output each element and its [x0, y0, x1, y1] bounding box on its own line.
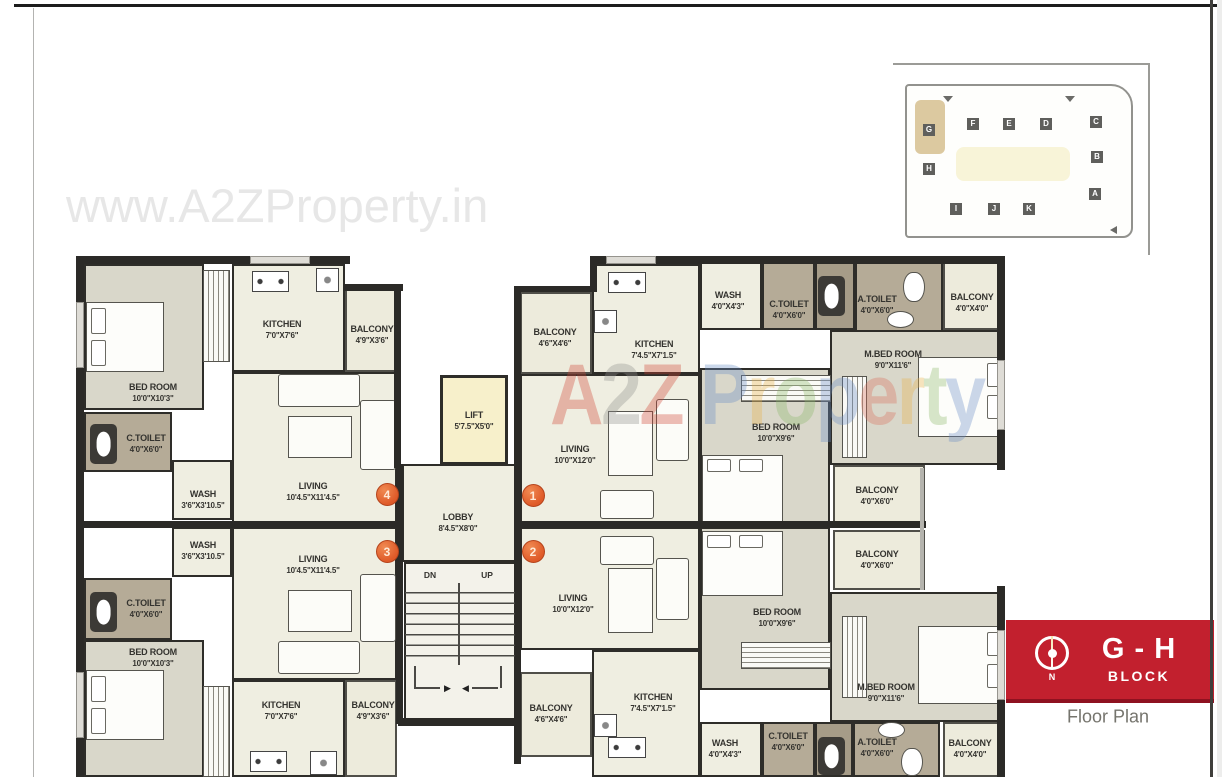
room-label-balcony-1: BALCONY4'6"X4'6"	[533, 327, 576, 349]
pillow-icon	[91, 308, 106, 334]
room-label-wash-3: WASH3'6"X3'10.5"	[181, 540, 224, 562]
room-label-bedroom-3: BED ROOM10'0"X10'3"	[129, 647, 177, 669]
room-label-ctoilet-rt: C.TOILET4'0"X6'0"	[769, 299, 808, 321]
sofa-icon	[600, 536, 654, 565]
sink-icon	[316, 268, 339, 292]
sofa-icon	[656, 399, 689, 461]
room-label-kitchen-3: KITCHEN7'0"X7'6"	[262, 700, 301, 722]
stair-down-label: DN	[424, 570, 436, 580]
north-compass-icon	[1035, 636, 1069, 670]
unit-marker-4: 4	[376, 483, 399, 506]
wc-icon	[90, 424, 117, 464]
wall-segment	[396, 464, 403, 724]
unit-marker-3: 3	[376, 540, 399, 563]
stair-divider	[458, 583, 460, 665]
pillow-icon	[739, 535, 763, 548]
table-icon	[608, 568, 653, 633]
sofa-icon	[278, 374, 360, 407]
room-label-balcony-rb: BALCONY4'0"X4'0"	[948, 738, 991, 760]
wall-segment	[516, 286, 596, 292]
room-label-atoilet-rt: A.TOILET4'0"X6'0"	[857, 294, 896, 316]
pillow-icon	[707, 535, 731, 548]
room-label-kitchen-1: KITCHEN7'4.5"X7'1.5"	[631, 339, 676, 361]
north-label: N	[1035, 672, 1069, 682]
brochure-page: www.A2ZProperty.in GFEDCBAHIJK BED ROOM1…	[0, 0, 1222, 777]
pillow-icon	[91, 676, 106, 702]
stair-up-label: UP	[481, 570, 493, 580]
wall-segment	[394, 284, 401, 468]
toilet-icon	[901, 748, 923, 776]
room-label-balcony-rt: BALCONY4'0"X4'0"	[950, 292, 993, 314]
block-subtitle: BLOCK	[1084, 668, 1194, 684]
room-balcony-3	[345, 680, 397, 777]
room-label-wash-4: WASH3'6"X3'10.5"	[181, 489, 224, 511]
room-label-bedroom-4: BED ROOM10'0"X10'3"	[129, 382, 177, 404]
sink-icon	[594, 310, 617, 333]
room-label-ctoilet-rb: C.TOILET4'0"X6'0"	[768, 731, 807, 753]
pillow-icon	[91, 340, 106, 366]
sofa-icon	[278, 641, 360, 674]
room-label-living-3: LIVING10'4.5"X11'4.5"	[286, 554, 339, 576]
room-label-mbedroom-rb: M.BED ROOM9'0"X11'6"	[857, 682, 915, 704]
room-label-bedroom-rb: BED ROOM10'0"X9'6"	[753, 607, 801, 629]
block-title: G - H	[1084, 633, 1194, 666]
stair-path-line	[500, 666, 502, 688]
room-label-atoilet-rb: A.TOILET4'0"X6'0"	[857, 737, 896, 759]
sink-icon	[310, 751, 337, 775]
basin-icon	[878, 722, 905, 738]
pillow-icon	[707, 459, 731, 472]
room-label-balcony-4: BALCONY4'9"X3'6"	[350, 324, 393, 346]
room-label-living-2: LIVING10'0"X12'0"	[552, 593, 593, 615]
wall-segment	[514, 521, 926, 528]
sink-icon	[594, 714, 617, 737]
wardv-icon	[203, 686, 230, 777]
wardh-icon	[741, 375, 831, 402]
room-label-wash-rt: WASH4'0"X4'3"	[712, 290, 745, 312]
sofa-icon	[600, 490, 654, 519]
room-label-ctoilet-3: C.TOILET4'0"X6'0"	[126, 598, 165, 620]
unit-marker-1: 1	[522, 484, 545, 507]
stair-path-line	[472, 687, 498, 689]
pillow-icon	[739, 459, 763, 472]
room-label-balcony-r2: BALCONY4'0"X6'0"	[855, 549, 898, 571]
stair-path-line	[414, 687, 440, 689]
wc-icon	[818, 737, 845, 775]
stove-icon	[252, 271, 289, 292]
room-label-ctoilet-4: C.TOILET4'0"X6'0"	[126, 433, 165, 455]
stove-icon	[608, 737, 646, 758]
room-label-lobby: LOBBY8'4.5"X8'0"	[439, 512, 478, 534]
stair-treads	[405, 583, 515, 665]
window-segment	[606, 256, 656, 264]
room-label-wash-rb: WASH4'0"X4'3"	[709, 738, 742, 760]
window-segment	[997, 630, 1005, 700]
room-label-living-1: LIVING10'0"X12'0"	[554, 444, 595, 466]
stove-icon	[608, 272, 646, 293]
sofa-icon	[360, 574, 396, 642]
balcony-railing	[920, 468, 924, 590]
stair-arrow-icon: ◀	[462, 684, 474, 694]
window-segment	[997, 360, 1005, 430]
page-edge-shade	[1217, 0, 1222, 777]
unit-marker-2: 2	[522, 540, 545, 563]
table-icon	[288, 416, 352, 458]
table-icon	[288, 590, 352, 632]
wardh-icon	[741, 642, 831, 669]
wall-segment	[398, 718, 520, 726]
wardv-icon	[842, 376, 867, 458]
wardv-icon	[203, 270, 230, 362]
window-segment	[76, 672, 84, 738]
window-segment	[250, 256, 310, 264]
sofa-icon	[656, 558, 689, 620]
toilet-icon	[903, 272, 925, 302]
wall-segment	[698, 256, 1005, 264]
room-label-mbedroom-rt: M.BED ROOM9'0"X11'6"	[864, 349, 922, 371]
wall-segment	[76, 521, 403, 528]
room-label-lift: LIFT5'7.5"X5'0"	[455, 410, 494, 432]
sofa-icon	[360, 400, 396, 470]
room-label-kitchen-2: KITCHEN7'4.5"X7'1.5"	[630, 692, 675, 714]
room-label-balcony-2: BALCONY4'6"X4'6"	[529, 703, 572, 725]
room-label-balcony-r1: BALCONY4'0"X6'0"	[855, 485, 898, 507]
room-label-bedroom-rt: BED ROOM10'0"X9'6"	[752, 422, 800, 444]
window-segment	[76, 302, 84, 368]
pillow-icon	[91, 708, 106, 734]
room-label-balcony-3: BALCONY4'9"X3'6"	[351, 700, 394, 722]
table-icon	[608, 411, 653, 476]
wc-icon	[90, 592, 117, 632]
stair-arrow-icon: ▶	[444, 684, 456, 694]
floor-plan-caption: Floor Plan	[1067, 707, 1149, 728]
page-right-border	[1210, 0, 1213, 777]
room-label-kitchen-4: KITCHEN7'0"X7'6"	[263, 319, 302, 341]
stair-path-line	[414, 666, 416, 688]
block-banner: N G - H BLOCK	[1006, 620, 1214, 703]
stove-icon	[250, 751, 287, 772]
wc-icon	[818, 276, 845, 316]
room-label-living-4: LIVING10'4.5"X11'4.5"	[286, 481, 339, 503]
